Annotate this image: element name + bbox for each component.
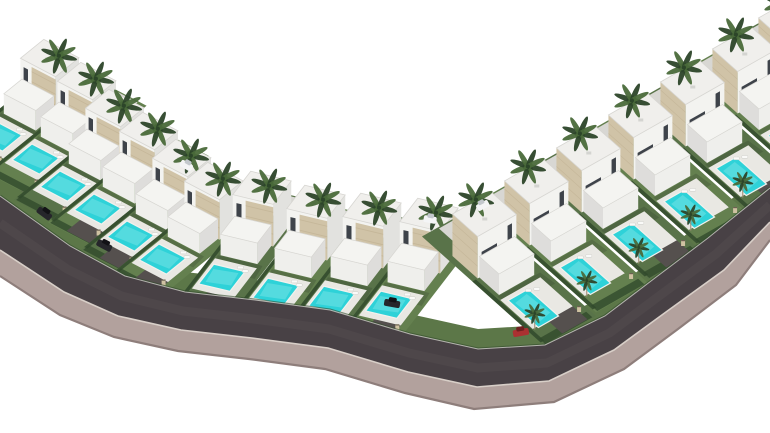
entrance-pillar-cap [733, 207, 737, 208]
sun-lounger [742, 156, 748, 159]
entrance-pillar-cap [0, 157, 2, 158]
rooftop-unit [586, 152, 591, 155]
rooftop-unit [534, 185, 539, 188]
sun-lounger [119, 206, 125, 209]
sun-lounger [409, 297, 415, 300]
sun-lounger [16, 128, 22, 131]
sun-lounger [629, 223, 635, 226]
entrance-pillar-cap [577, 306, 581, 307]
entrance-pillar-cap [97, 230, 101, 231]
sun-lounger [237, 266, 243, 269]
sun-lounger [85, 183, 91, 186]
sun-lounger [148, 228, 154, 231]
entrance-pillar-cap [629, 273, 633, 274]
sun-lounger [57, 156, 63, 159]
sun-lounger [242, 270, 248, 273]
sun-lounger [681, 190, 687, 193]
sun-lounger [184, 256, 190, 259]
entrance-pillar-cap [63, 207, 67, 208]
sun-lounger [638, 222, 644, 225]
rooftop-unit [638, 119, 643, 122]
entrance-pillar-cap [162, 280, 166, 281]
sun-lounger [115, 201, 121, 204]
sun-lounger [180, 251, 186, 254]
sun-lounger [525, 289, 531, 292]
entrance-pillar-cap [395, 324, 399, 325]
rooftop-unit [742, 53, 747, 56]
sun-lounger [81, 178, 87, 181]
villa-development-illustration [0, 0, 770, 433]
sun-lounger [733, 157, 739, 160]
rooftop-unit [482, 218, 487, 221]
real-estate-aerial-render [0, 0, 770, 433]
sun-lounger [534, 288, 540, 291]
sun-lounger [347, 288, 353, 291]
rooftop-unit [690, 86, 695, 89]
sun-lounger [690, 189, 696, 192]
sun-lounger [291, 280, 297, 283]
sun-lounger [352, 292, 358, 295]
sun-lounger [152, 233, 158, 236]
sun-lounger [53, 151, 59, 154]
sun-lounger [577, 256, 583, 259]
sun-lounger [586, 255, 592, 258]
sun-lounger [20, 133, 26, 136]
sun-lounger [404, 293, 410, 296]
sun-lounger [296, 284, 302, 287]
entrance-pillar-cap [681, 240, 685, 241]
